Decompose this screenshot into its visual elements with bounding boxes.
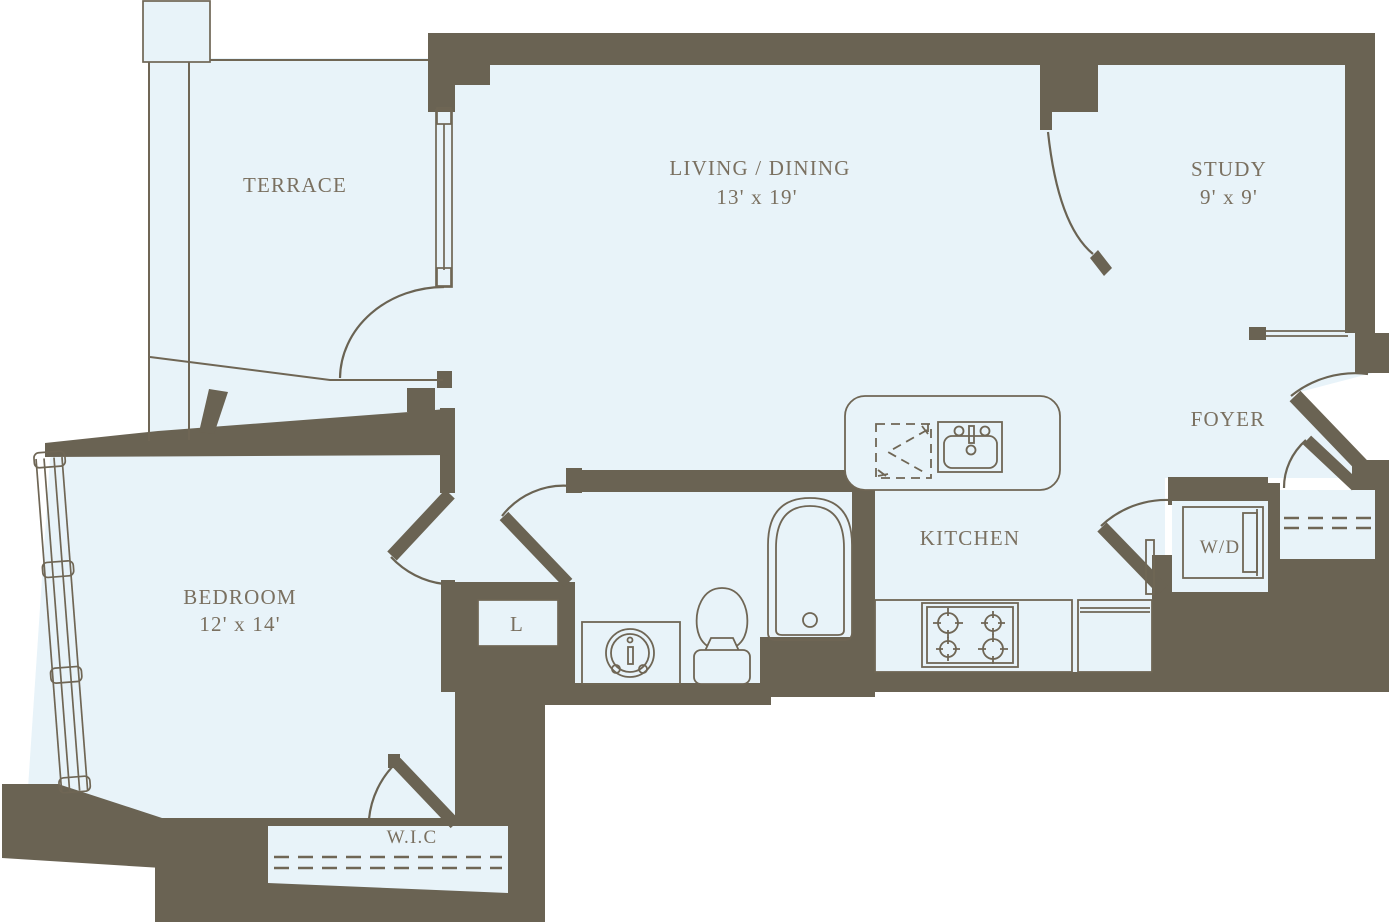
kitchen-left-wall — [852, 468, 875, 692]
bath-door-stub — [566, 468, 582, 493]
bath-top-wall — [582, 470, 875, 492]
terrace-floor — [148, 58, 452, 445]
laundry-label: W/D — [1200, 537, 1241, 558]
terrace-label: TERRACE — [243, 173, 347, 197]
pocket-door-end-block — [1249, 327, 1266, 340]
floorplan-drawing: TERRACE LIVING / DINING 13' x 19' STUDY … — [0, 0, 1389, 924]
kitchen-bottom-wall — [866, 672, 1158, 692]
entry-closet-floor — [1280, 490, 1375, 559]
bath-bottom-wall — [545, 683, 771, 705]
closet-right-wall — [1375, 487, 1389, 557]
bedroom-door-stub — [441, 580, 455, 600]
laundry-top-wall — [1168, 477, 1268, 501]
wic-right-wall — [455, 690, 545, 822]
living-label: LIVING / DINING — [669, 156, 850, 180]
bedroom-dims: 12' x 14' — [199, 612, 280, 636]
study-dims: 9' x 9' — [1200, 185, 1258, 209]
floorplan: TERRACE LIVING / DINING 13' x 19' STUDY … — [0, 0, 1389, 924]
linen-label: L — [510, 612, 524, 636]
foyer-label: FOYER — [1191, 407, 1266, 431]
wic-label: W.I.C — [387, 827, 438, 848]
entry-jamb-wall — [1355, 333, 1389, 373]
bedroom-label: BEDROOM — [183, 585, 296, 609]
bedroom-wall-step-block — [407, 388, 435, 412]
study-label: STUDY — [1191, 157, 1267, 181]
kitchen-label: KITCHEN — [920, 526, 1021, 550]
closet-divider-wall — [1266, 483, 1280, 560]
kitchen-island — [845, 396, 1060, 490]
terrace-pillar — [143, 1, 210, 62]
living-dims: 13' x 19' — [716, 185, 797, 209]
toilet — [694, 588, 750, 684]
